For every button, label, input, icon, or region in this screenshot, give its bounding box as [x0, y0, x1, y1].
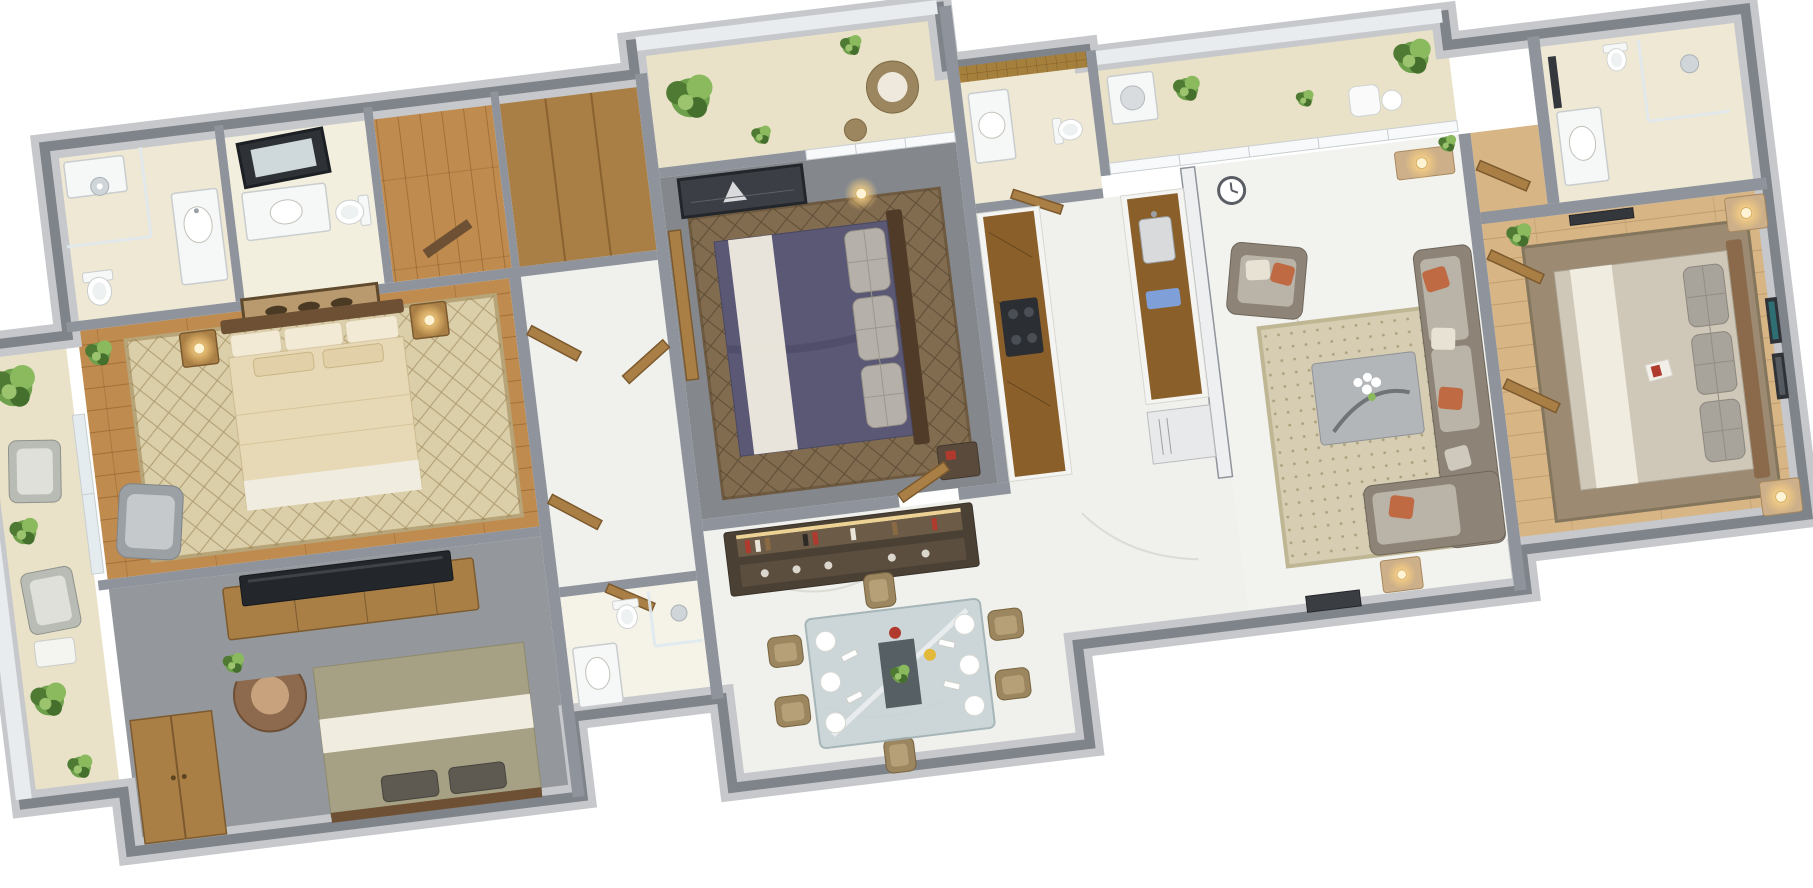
lounge-chair [19, 565, 82, 636]
walk-in-wardrobe-top [499, 84, 656, 267]
dining-chair [987, 607, 1024, 641]
lounge-chair [8, 440, 61, 503]
dining-chair [994, 667, 1031, 701]
dining-chair [767, 634, 804, 668]
rust-pillow [1388, 495, 1415, 520]
balcony-side-table [34, 637, 77, 668]
refrigerator [1147, 405, 1216, 464]
white-pillow [1431, 328, 1455, 350]
master-lounge-chair [116, 483, 184, 560]
dressing-floor-planks [373, 102, 511, 282]
cooktop [999, 297, 1044, 357]
outdoor-chair [1348, 84, 1381, 117]
dining-chair [774, 694, 811, 728]
rust-pillow [1438, 386, 1464, 410]
dining-chair [883, 736, 917, 773]
sink [1139, 216, 1176, 264]
red-decor [945, 450, 956, 460]
floor-plan-render [0, 0, 1813, 888]
dining-chair [863, 572, 897, 609]
armchair [1226, 242, 1308, 320]
